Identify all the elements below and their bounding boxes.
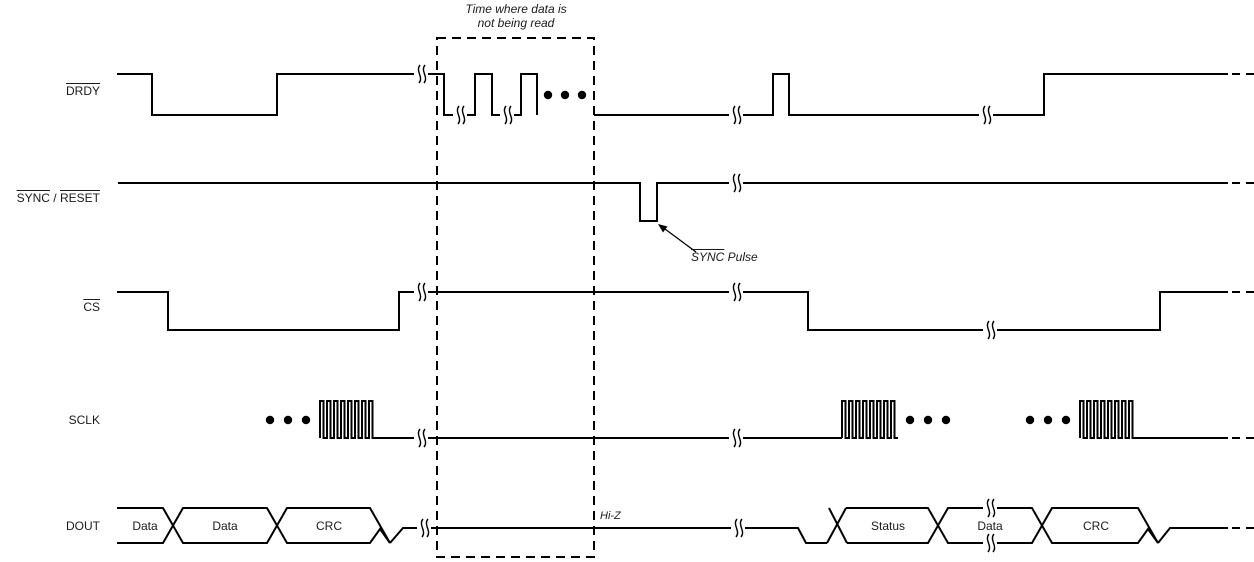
bus-value-data-3: Data (977, 519, 1002, 533)
signal-label-sync-reset: SYNC / RESET (0, 190, 100, 206)
sync-pulse-annotation: SYNC Pulse (691, 250, 758, 264)
drdy-signal-trace (117, 74, 1254, 115)
drdy-ellipsis-dots (544, 91, 586, 99)
sclk-signal-trace (320, 401, 1254, 438)
bus-value-crc-1: CRC (316, 519, 342, 533)
cs-signal-trace (117, 292, 1254, 330)
bus-value-data-1: Data (132, 519, 157, 533)
signal-label-cs: CS (0, 299, 100, 315)
no-read-window-title: Time where data is not being read (436, 2, 596, 30)
timing-diagram-svg (0, 0, 1254, 562)
time-break-marks (414, 64, 997, 553)
timing-diagram: Time where data is not being read DRDY S… (0, 0, 1254, 562)
no-read-window-title-line2: not being read (478, 16, 555, 30)
bus-value-data-2: Data (212, 519, 237, 533)
signal-label-drdy: DRDY (0, 83, 100, 99)
bus-value-status: Status (871, 519, 905, 533)
sync-pulse-arrow (658, 224, 696, 252)
sync-reset-signal-trace (118, 183, 1254, 221)
signal-label-dout: DOUT (0, 518, 100, 534)
sclk-ellipsis-dots (266, 416, 1070, 424)
bus-value-crc-2: CRC (1083, 519, 1109, 533)
no-read-window-title-line1: Time where data is (465, 2, 566, 16)
signal-label-sclk: SCLK (0, 412, 100, 428)
hi-z-annotation: Hi-Z (600, 510, 621, 522)
